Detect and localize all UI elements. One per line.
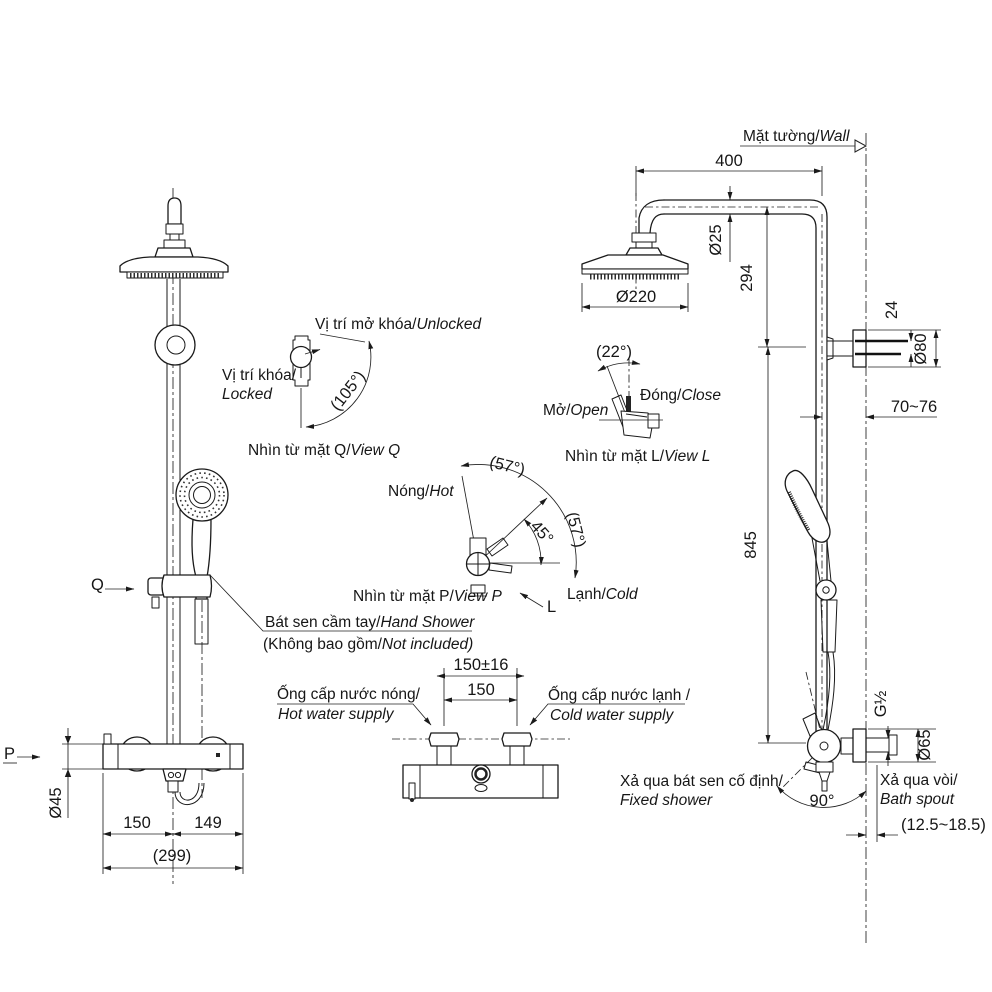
hand-shower-annotation: Bát sen cầm tay/Hand Shower (Không bao g… [210, 575, 475, 653]
angle-57-upper: (57°) [488, 453, 527, 479]
view-letter-l: L [547, 598, 556, 616]
angle-22: (22°) [596, 343, 632, 361]
open-angle-arc [598, 363, 640, 371]
dim-wall-clearance: 70~76 [800, 398, 937, 417]
view-p-caption: Nhìn từ mặt P/View P [353, 588, 502, 605]
angle-105: (105°) [327, 368, 369, 415]
cold-label: Lạnh/Cold [567, 586, 639, 603]
view-letter-p: P [4, 745, 15, 763]
fixed-shower-label-en: Fixed shower [620, 792, 713, 809]
overhead-shower-head-side [582, 255, 688, 277]
hose-outlet-nut [163, 769, 186, 781]
dim-thread-size: G½ [872, 690, 890, 766]
dim-299-overall: (299) [153, 847, 192, 865]
cold-supply-annotation: Ống cấp nước lạnh / Cold water supply [530, 686, 691, 725]
dim-pipe-dia: Ø25 [707, 186, 730, 262]
bath-spout-label-en: Bath spout [880, 791, 955, 808]
cold-supply-label-en: Cold water supply [550, 707, 674, 724]
hot-label: Nóng/Hot [388, 483, 454, 500]
valve-body-front [403, 765, 558, 802]
view-arrow-l [520, 593, 543, 607]
hand-shower-label: Bát sen cầm tay/Hand Shower [265, 614, 475, 631]
svg-text:G½: G½ [872, 690, 890, 717]
dim-150-tol: 150±16 [454, 656, 509, 674]
angle-45: 45° [527, 517, 557, 548]
supply-elbow-cap [889, 735, 897, 755]
angle-90: 90° [810, 792, 835, 810]
svg-text:(12.5~18.5): (12.5~18.5) [901, 816, 986, 834]
wall-label: Mặt tường/Wall [743, 128, 850, 145]
open-label: Mở/Open [543, 402, 608, 419]
wall-bracket-disc [155, 325, 195, 365]
svg-text:400: 400 [715, 152, 743, 170]
outlet-annotations: Xả qua bát sen cố định/ Fixed shower Xả … [620, 772, 958, 809]
hot-supply-annotation: Ống cấp nước nóng/ Hot water supply [277, 685, 431, 725]
dim-arm-length: 400 [636, 152, 822, 196]
wall-arrow-icon [855, 140, 866, 152]
drawing-page: Ø45 P Q 150 149 (299) Vị trí mở khóa/Unl… [0, 0, 992, 992]
dim-bracket-dia: Ø80 [868, 330, 941, 367]
front-view: Ø45 P Q 150 149 (299) [3, 188, 243, 884]
svg-text:70~76: 70~76 [891, 398, 937, 416]
close-label: Đóng/Close [640, 387, 721, 404]
hose-spring-guard [821, 600, 837, 652]
view-l-detail: (22°) Đóng/Close Mở/Open Nhìn từ mặt L/V… [543, 343, 721, 465]
view-arrow-p: P [3, 745, 40, 763]
locked-label-en: Locked [222, 386, 273, 403]
view-q-caption: Nhìn từ mặt Q/View Q [248, 442, 400, 459]
hot-inlet [429, 733, 459, 766]
view-l-caption: Nhìn từ mặt L/View L [565, 448, 710, 465]
shower-technical-drawing: Ø45 P Q 150 149 (299) Vị trí mở khóa/Unl… [0, 0, 992, 992]
hot-supply-label: Ống cấp nước nóng/ [277, 685, 421, 703]
wall-bracket-side [827, 330, 908, 367]
svg-text:Ø25: Ø25 [707, 224, 725, 255]
safety-stop-pin [104, 734, 111, 744]
dim-valve-dia: Ø45 [47, 728, 103, 819]
hose-loop [175, 783, 204, 805]
dim-150-inlets: 150 [467, 681, 495, 699]
hand-shower-side [785, 470, 837, 730]
svg-text:24: 24 [883, 301, 901, 319]
hot-supply-label-en: Hot water supply [278, 706, 395, 723]
view-letter-q: Q [91, 576, 104, 594]
slider-clamp-side [816, 580, 836, 600]
view-p-detail: (57°) 45° (57°) Nóng/Hot Lạnh/Cold Nhìn … [353, 453, 639, 616]
unlocked-label: Vị trí mở khóa/Unlocked [315, 316, 482, 333]
view-arrow-q: Q [91, 576, 134, 594]
overhead-shower-head-front [120, 198, 228, 278]
cold-supply-label: Ống cấp nước lạnh / [548, 686, 691, 704]
hose-thread-section [195, 599, 208, 644]
dim-screw-spacing: 24 [883, 301, 911, 367]
svg-text:Ø80: Ø80 [912, 333, 930, 364]
dim-150-left: 150 [123, 814, 151, 832]
svg-text:294: 294 [738, 264, 756, 292]
dim-head-dia: Ø220 [582, 283, 688, 312]
svg-text:Ø45: Ø45 [47, 787, 65, 818]
dim-149-right: 149 [194, 814, 222, 832]
svg-text:Ø220: Ø220 [616, 288, 656, 306]
bath-spout-label: Xả qua vòi/ [880, 772, 958, 789]
wall-annotation: Mặt tường/Wall [740, 128, 866, 152]
svg-text:845: 845 [742, 531, 760, 559]
fixed-shower-label: Xả qua bát sen cố định/ [620, 773, 784, 790]
dim-column-length: 845 [742, 347, 806, 743]
angle-57-lower: (57°) [563, 510, 589, 549]
svg-text:Ø65: Ø65 [916, 729, 934, 760]
dim-flange-dia: Ø65 [868, 729, 936, 762]
view-q-detail: Vị trí mở khóa/Unlocked Vị trí khóa/ Loc… [222, 316, 482, 459]
not-included-label: (Không bao gồm/Not included) [263, 636, 473, 653]
spout-flange [853, 729, 866, 762]
shower-arm-side [626, 200, 827, 736]
dim-head-drop: 294 [738, 207, 806, 347]
drain-lever [409, 783, 415, 799]
cold-inlet [502, 733, 532, 766]
locked-label-vi: Vị trí khóa/ [222, 367, 297, 384]
side-view: Mặt tường/Wall 400 Ø25 294 Ø220 [582, 128, 986, 943]
